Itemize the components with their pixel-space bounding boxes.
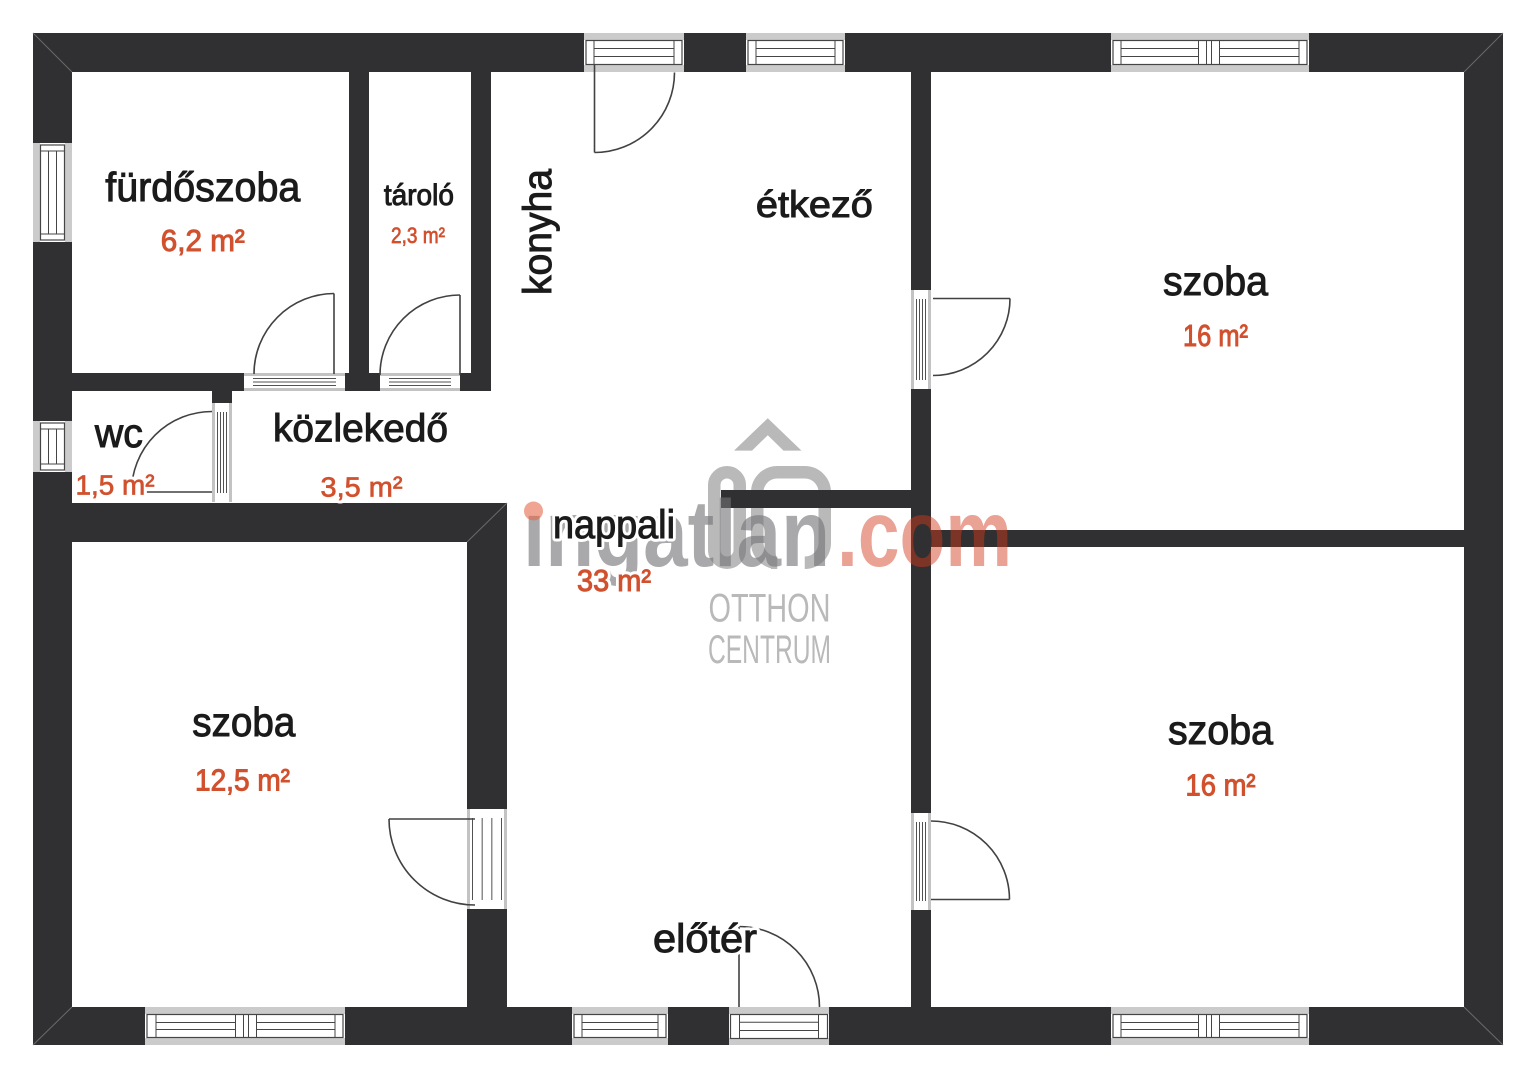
svg-text:tároló: tároló — [384, 179, 454, 212]
svg-text:3,5 m²: 3,5 m² — [321, 472, 403, 503]
svg-text:16 m²: 16 m² — [1186, 768, 1256, 803]
svg-text:szoba: szoba — [192, 699, 295, 745]
svg-text:étkező: étkező — [756, 184, 873, 225]
svg-text:szoba: szoba — [1163, 258, 1268, 304]
svg-text:33 m²: 33 m² — [577, 563, 651, 598]
svg-text:2,3 m²: 2,3 m² — [391, 223, 445, 248]
svg-text:nappali: nappali — [553, 503, 675, 547]
svg-text:12,5 m²: 12,5 m² — [195, 763, 290, 798]
svg-text:OTTHON: OTTHON — [709, 587, 831, 631]
svg-text:1,5 m²: 1,5 m² — [76, 470, 155, 501]
svg-text:szoba: szoba — [1168, 707, 1273, 753]
svg-text:6,2 m²: 6,2 m² — [161, 223, 245, 258]
svg-text:.com: .com — [837, 481, 1012, 587]
svg-text:fürdőszoba: fürdőszoba — [105, 164, 300, 210]
svg-text:közlekedő: közlekedő — [273, 407, 448, 450]
svg-text:előtér: előtér — [653, 917, 757, 961]
svg-text:konyha: konyha — [516, 168, 560, 295]
svg-text:wc: wc — [94, 410, 143, 456]
svg-text:CENTRUM: CENTRUM — [708, 628, 831, 672]
svg-text:16 m²: 16 m² — [1183, 318, 1248, 353]
